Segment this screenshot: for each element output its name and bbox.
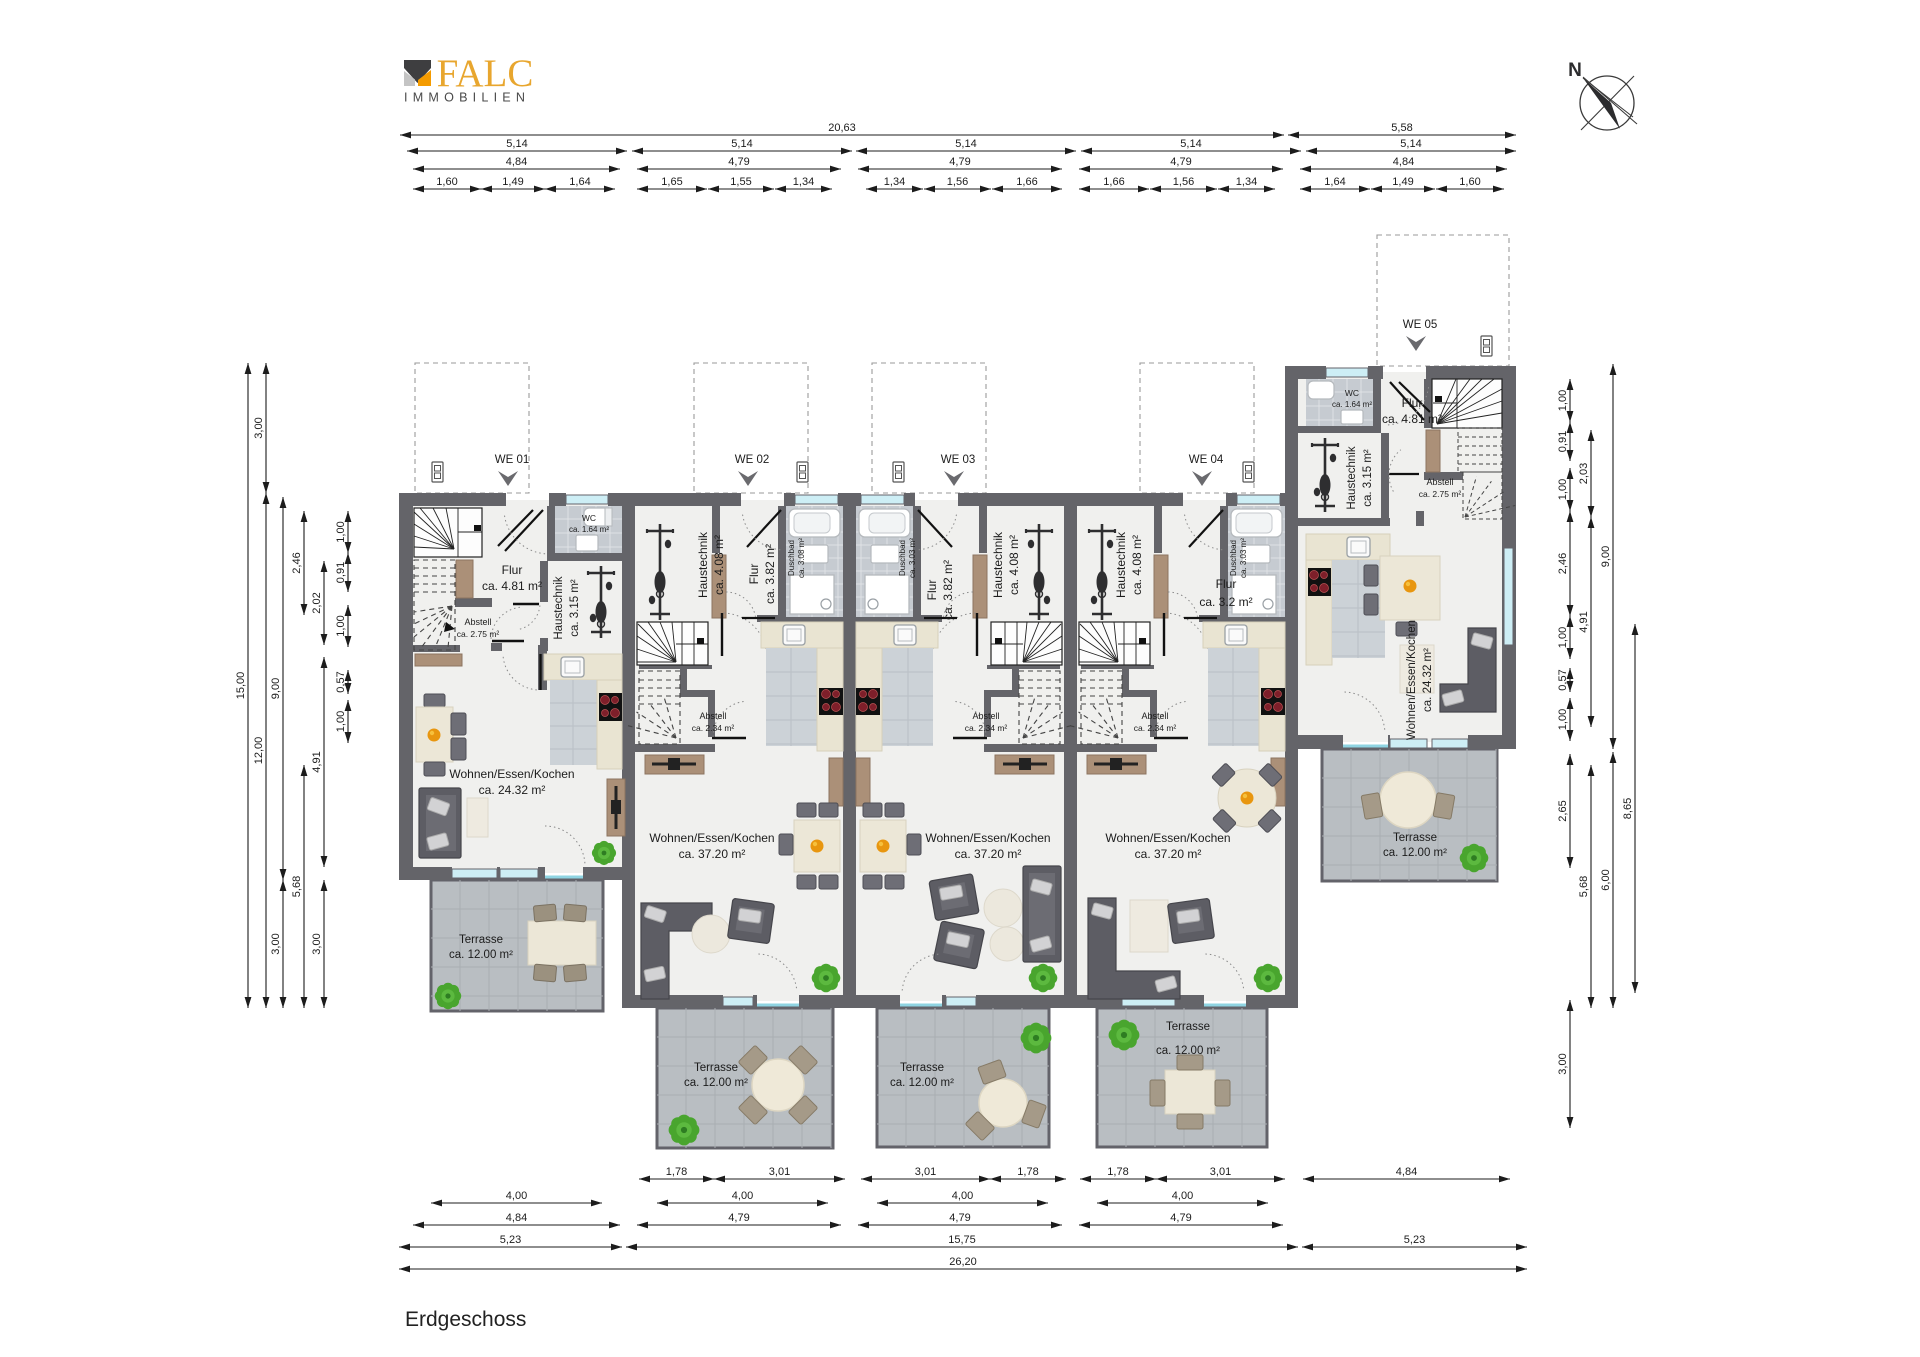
svg-text:1,00: 1,00 (1557, 709, 1569, 730)
svg-text:ca. 37.20 m²: ca. 37.20 m² (955, 847, 1022, 861)
svg-text:1,00: 1,00 (335, 711, 347, 732)
svg-text:ca. 4.81 m²: ca. 4.81 m² (482, 579, 542, 593)
svg-text:Haustechnik: Haustechnik (1346, 446, 1358, 510)
svg-text:1,65: 1,65 (661, 176, 682, 188)
svg-text:ca. 4.81 m²: ca. 4.81 m² (1382, 412, 1442, 426)
svg-text:4,84: 4,84 (506, 156, 527, 168)
svg-text:15,00: 15,00 (235, 672, 247, 700)
svg-text:ca. 3.08 m²: ca. 3.08 m² (797, 538, 806, 578)
svg-text:1,00: 1,00 (1557, 627, 1569, 648)
svg-text:4,79: 4,79 (728, 156, 749, 168)
svg-text:15,75: 15,75 (948, 1234, 976, 1246)
svg-text:Abstell: Abstell (972, 711, 999, 721)
svg-text:12,00: 12,00 (253, 737, 265, 765)
svg-text:Erdgeschoss: Erdgeschoss (405, 1308, 526, 1331)
svg-text:ca. 37.20 m²: ca. 37.20 m² (679, 847, 746, 861)
svg-text:1,56: 1,56 (947, 176, 968, 188)
svg-text:0,57: 0,57 (1557, 669, 1569, 690)
svg-text:5,14: 5,14 (731, 138, 752, 150)
svg-text:5,14: 5,14 (506, 138, 527, 150)
svg-text:Haustechnik: Haustechnik (553, 576, 565, 640)
svg-text:Abstell: Abstell (464, 617, 491, 627)
svg-text:1,55: 1,55 (730, 176, 751, 188)
svg-text:5,23: 5,23 (1404, 1234, 1425, 1246)
svg-text:ca. 12.00 m²: ca. 12.00 m² (890, 1077, 954, 1089)
svg-text:ca. 1.64 m²: ca. 1.64 m² (1332, 400, 1372, 409)
svg-text:3,00: 3,00 (253, 417, 265, 438)
svg-text:5,23: 5,23 (500, 1234, 521, 1246)
svg-text:1,00: 1,00 (335, 521, 347, 542)
svg-text:ca. 12.00 m²: ca. 12.00 m² (1383, 847, 1447, 859)
svg-text:Terrasse: Terrasse (1166, 1021, 1210, 1033)
svg-text:1,64: 1,64 (569, 176, 590, 188)
svg-text:4,84: 4,84 (1396, 1166, 1417, 1178)
svg-text:3,01: 3,01 (769, 1166, 790, 1178)
svg-text:FALC: FALC (437, 52, 534, 95)
svg-text:ca. 24.32 m²: ca. 24.32 m² (479, 783, 546, 797)
svg-text:Flur: Flur (925, 580, 939, 601)
svg-text:WE 05: WE 05 (1403, 319, 1438, 331)
svg-text:1,60: 1,60 (436, 176, 457, 188)
svg-text:3,00: 3,00 (270, 933, 282, 954)
svg-text:4,79: 4,79 (728, 1212, 749, 1224)
svg-text:0,57: 0,57 (335, 671, 347, 692)
svg-text:ca. 3.82 m²: ca. 3.82 m² (763, 544, 777, 604)
svg-text:3,00: 3,00 (1557, 1053, 1569, 1074)
svg-text:9,00: 9,00 (270, 678, 282, 699)
svg-text:4,91: 4,91 (311, 751, 323, 772)
svg-text:Terrasse: Terrasse (694, 1062, 738, 1074)
svg-text:Abstell: Abstell (1141, 711, 1168, 721)
svg-text:5,68: 5,68 (291, 876, 303, 897)
svg-text:ca. 3.03 m²: ca. 3.03 m² (908, 538, 917, 578)
svg-text:1,34: 1,34 (884, 176, 905, 188)
svg-text:2,02: 2,02 (311, 592, 323, 613)
svg-text:4,00: 4,00 (506, 1190, 527, 1202)
svg-text:1,00: 1,00 (1557, 390, 1569, 411)
svg-text:WC: WC (582, 513, 596, 523)
svg-text:ca. 24.32 m²: ca. 24.32 m² (1422, 648, 1434, 712)
svg-text:1,34: 1,34 (1236, 176, 1257, 188)
svg-text:ca. 12.00 m²: ca. 12.00 m² (449, 949, 513, 961)
svg-text:2,65: 2,65 (1557, 800, 1569, 821)
svg-text:Wohnen/Essen/Kochen: Wohnen/Essen/Kochen (1105, 831, 1230, 845)
svg-text:Abstell: Abstell (1426, 477, 1453, 487)
svg-text:5,14: 5,14 (1400, 138, 1421, 150)
svg-text:ca. 3.15 m²: ca. 3.15 m² (569, 579, 581, 637)
svg-text:0,91: 0,91 (335, 562, 347, 583)
svg-text:4,79: 4,79 (1170, 1212, 1191, 1224)
svg-text:3,01: 3,01 (915, 1166, 936, 1178)
svg-text:1,78: 1,78 (1107, 1166, 1128, 1178)
svg-text:ca. 3.15 m²: ca. 3.15 m² (1362, 449, 1374, 507)
svg-text:4,79: 4,79 (949, 156, 970, 168)
svg-text:ca. 4.08 m²: ca. 4.08 m² (1007, 535, 1021, 595)
svg-text:WC: WC (1345, 388, 1359, 398)
svg-text:Wohnen/Essen/Kochen: Wohnen/Essen/Kochen (925, 831, 1050, 845)
svg-text:ca. 4.08 m²: ca. 4.08 m² (712, 535, 726, 595)
svg-text:4,84: 4,84 (1393, 156, 1414, 168)
svg-text:4,79: 4,79 (1170, 156, 1191, 168)
svg-text:0,91: 0,91 (1557, 431, 1569, 452)
svg-text:1,64: 1,64 (1324, 176, 1345, 188)
svg-text:Haustechnik: Haustechnik (991, 531, 1005, 598)
svg-text:Flur: Flur (1216, 577, 1237, 591)
svg-text:IMMOBILIEN: IMMOBILIEN (404, 91, 530, 105)
svg-text:4,00: 4,00 (732, 1190, 753, 1202)
svg-text:N: N (1568, 60, 1582, 81)
svg-text:Haustechnik: Haustechnik (1114, 531, 1128, 598)
svg-text:ca. 2.34 m²: ca. 2.34 m² (1134, 723, 1177, 733)
svg-text:8,65: 8,65 (1622, 798, 1634, 819)
svg-text:WE 01: WE 01 (495, 454, 530, 466)
svg-text:9,00: 9,00 (1600, 546, 1612, 567)
svg-text:4,84: 4,84 (506, 1212, 527, 1224)
svg-text:1,00: 1,00 (335, 615, 347, 636)
svg-text:1,66: 1,66 (1103, 176, 1124, 188)
svg-text:ca. 2.75 m²: ca. 2.75 m² (1419, 489, 1462, 499)
svg-text:1,66: 1,66 (1016, 176, 1037, 188)
svg-text:20,63: 20,63 (828, 122, 856, 134)
svg-text:Wohnen/Essen/Kochen: Wohnen/Essen/Kochen (449, 767, 574, 781)
svg-text:3,00: 3,00 (311, 933, 323, 954)
svg-text:ca. 2.34 m²: ca. 2.34 m² (692, 723, 735, 733)
svg-text:4,79: 4,79 (949, 1212, 970, 1224)
svg-text:5,14: 5,14 (955, 138, 976, 150)
svg-text:Wohnen/Essen/Kochen: Wohnen/Essen/Kochen (649, 831, 774, 845)
svg-text:Flur: Flur (1402, 396, 1423, 410)
svg-text:ca. 3.82 m²: ca. 3.82 m² (941, 560, 955, 620)
svg-text:2,46: 2,46 (1557, 553, 1569, 574)
svg-text:ca. 12.00 m²: ca. 12.00 m² (684, 1077, 748, 1089)
svg-text:5,14: 5,14 (1180, 138, 1201, 150)
svg-text:1,00: 1,00 (1557, 479, 1569, 500)
svg-text:ca. 4.08 m²: ca. 4.08 m² (1130, 535, 1144, 595)
svg-text:1,49: 1,49 (1392, 176, 1413, 188)
svg-text:Terrasse: Terrasse (900, 1062, 944, 1074)
svg-text:Flur: Flur (502, 563, 523, 577)
svg-text:ca. 37.20 m²: ca. 37.20 m² (1135, 847, 1202, 861)
svg-text:Abstell: Abstell (699, 711, 726, 721)
svg-text:ca. 3.03 m²: ca. 3.03 m² (1239, 538, 1248, 578)
svg-text:WE 04: WE 04 (1189, 454, 1224, 466)
svg-text:Terrasse: Terrasse (1393, 832, 1437, 844)
svg-text:1,49: 1,49 (502, 176, 523, 188)
svg-text:1,56: 1,56 (1173, 176, 1194, 188)
svg-text:ca. 3.2 m²: ca. 3.2 m² (1199, 595, 1252, 609)
svg-text:1,78: 1,78 (1017, 1166, 1038, 1178)
svg-text:26,20: 26,20 (949, 1256, 977, 1268)
svg-text:Duschbad: Duschbad (898, 540, 907, 576)
svg-text:Terrasse: Terrasse (459, 934, 503, 946)
svg-text:1,78: 1,78 (666, 1166, 687, 1178)
svg-text:ca. 2.75 m²: ca. 2.75 m² (457, 629, 500, 639)
svg-text:2,46: 2,46 (291, 552, 303, 573)
svg-text:WE 03: WE 03 (941, 454, 976, 466)
svg-text:WE 02: WE 02 (735, 454, 770, 466)
svg-text:5,68: 5,68 (1578, 876, 1590, 897)
svg-text:Duschbad: Duschbad (787, 540, 796, 576)
svg-text:1,34: 1,34 (793, 176, 814, 188)
svg-text:4,91: 4,91 (1578, 611, 1590, 632)
svg-text:Wohnen/Essen/Kochen: Wohnen/Essen/Kochen (1406, 620, 1418, 740)
svg-text:Flur: Flur (747, 564, 761, 585)
svg-text:4,00: 4,00 (1172, 1190, 1193, 1202)
svg-text:4,00: 4,00 (952, 1190, 973, 1202)
svg-text:6,00: 6,00 (1600, 869, 1612, 890)
svg-text:2,03: 2,03 (1578, 463, 1590, 484)
svg-text:5,58: 5,58 (1391, 122, 1412, 134)
svg-text:ca. 2.34 m²: ca. 2.34 m² (965, 723, 1008, 733)
svg-text:3,01: 3,01 (1210, 1166, 1231, 1178)
svg-text:ca. 1.64 m²: ca. 1.64 m² (569, 525, 609, 534)
svg-text:Duschbad: Duschbad (1229, 540, 1238, 576)
svg-text:Haustechnik: Haustechnik (696, 531, 710, 598)
svg-text:1,60: 1,60 (1459, 176, 1480, 188)
